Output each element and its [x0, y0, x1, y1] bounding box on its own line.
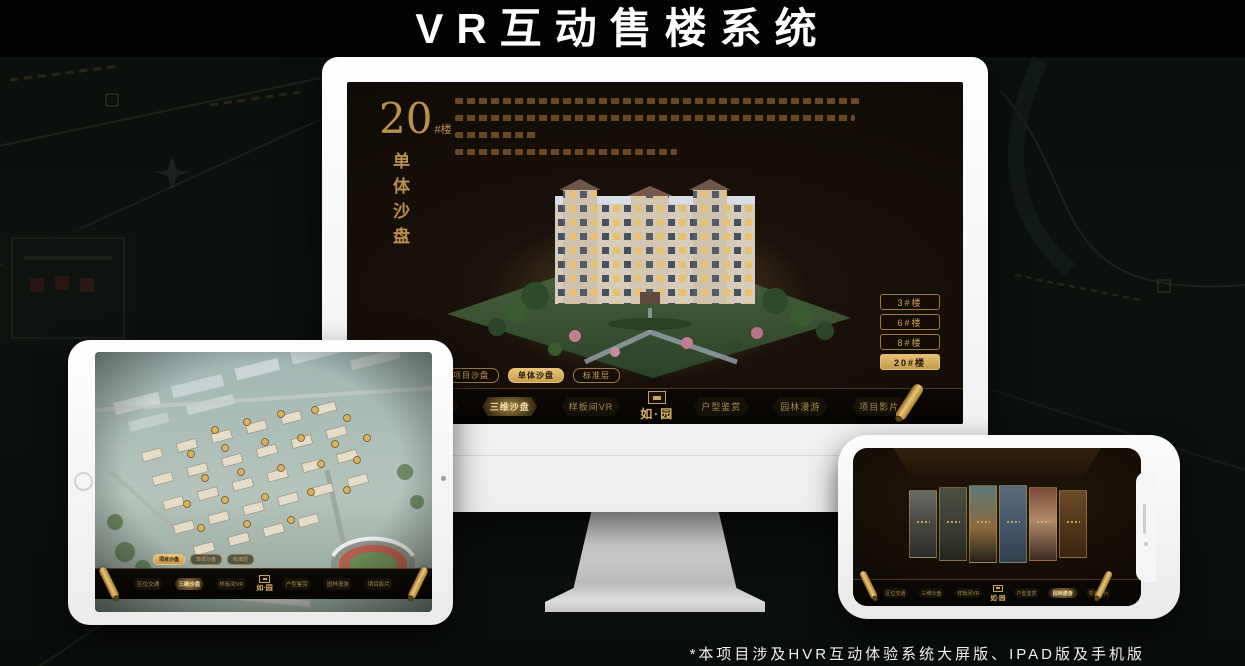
background-plaque	[2, 228, 134, 348]
nav-item-garden-roam[interactable]: 园林漫游	[321, 578, 355, 590]
intro-text-line	[455, 98, 863, 104]
phone-screen: 区位交通 三维沙盘 样板间VR 如·园 户型鉴赏 园林漫游 项目影片	[853, 448, 1141, 606]
nav-item-model-room-vr[interactable]: 样板间VR	[952, 588, 984, 598]
tablet-subtab-project-sandbox[interactable]: 项目沙盘	[153, 554, 185, 565]
nav-item-model-room-vr[interactable]: 样板间VR	[557, 397, 626, 416]
brand-logo-text: 如·园	[640, 405, 674, 422]
nav-item-location-traffic[interactable]: 区位交通	[880, 588, 910, 598]
seal-stamp-icon	[993, 585, 1003, 592]
gallery-panel-6[interactable]	[1059, 490, 1087, 558]
tablet-screen: 项目沙盘 单体沙盘 标准层 区位交通 三维沙盘 样板间VR 如·园 户型鉴赏 园…	[95, 352, 432, 612]
subtab-standard-floor[interactable]: 标准层	[573, 368, 620, 383]
tablet-subtab-single-building[interactable]: 单体沙盘	[190, 554, 222, 565]
brand-logo: 如·园	[640, 391, 674, 422]
floor-button-6[interactable]: 6#楼	[880, 314, 940, 330]
phone-device: 区位交通 三维沙盘 样板间VR 如·园 户型鉴赏 园林漫游 项目影片	[838, 435, 1180, 619]
seal-stamp-icon	[259, 575, 270, 583]
footnote-caption: *本项目涉及HVR互动体验系统大屏版、IPAD版及手机版	[690, 643, 1145, 664]
nav-item-garden-roam[interactable]: 园林漫游	[768, 397, 832, 416]
intro-text-line	[455, 132, 539, 138]
brand-logo-text: 如·园	[990, 592, 1005, 602]
building-number: 20	[379, 94, 432, 143]
phone-notch	[1136, 472, 1156, 582]
tablet-camera-icon	[441, 476, 446, 481]
nav-item-floorplan-gallery[interactable]: 户型鉴赏	[1012, 588, 1042, 598]
floor-selector: 3#楼 6#楼 8#楼 20#楼	[880, 294, 940, 370]
floor-button-8[interactable]: 8#楼	[880, 334, 940, 350]
nav-item-3d-sandbox[interactable]: 三维沙盘	[478, 397, 542, 416]
page-canvas: VR互动售楼系统 20#楼 单体沙盘	[0, 0, 1245, 666]
seal-stamp-icon	[648, 391, 666, 404]
tablet-subtabs: 项目沙盘 单体沙盘 标准层	[153, 554, 254, 565]
phone-speaker-icon	[1143, 504, 1146, 534]
background-compass	[155, 156, 190, 190]
tablet-home-button	[74, 472, 93, 491]
tablet-main-nav: 区位交通 三维沙盘 样板间VR 如·园 户型鉴赏 园林漫游 项目影片	[95, 568, 432, 599]
nav-item-3d-sandbox[interactable]: 三维沙盘	[172, 578, 206, 590]
nav-item-project-film[interactable]: 项目影片	[362, 578, 396, 590]
intro-text-line	[455, 115, 855, 121]
tablet-subtab-standard-floor[interactable]: 标准层	[227, 554, 254, 565]
page-title: VR互动售楼系统	[415, 8, 829, 50]
building-headline: 20#楼	[379, 98, 452, 140]
floor-button-3[interactable]: 3#楼	[880, 294, 940, 310]
subtab-single-building[interactable]: 单体沙盘	[508, 368, 564, 383]
gallery-panel-2[interactable]	[939, 487, 967, 561]
brand-logo-text: 如·园	[256, 583, 272, 593]
brand-logo: 如·园	[256, 575, 272, 593]
building-3d-render	[435, 146, 863, 380]
gallery-panel-5[interactable]	[1029, 487, 1057, 561]
brand-logo: 如·园	[990, 585, 1005, 602]
section-title-vertical: 单体沙盘	[387, 152, 412, 252]
nav-item-floorplan-gallery[interactable]: 户型鉴赏	[689, 397, 753, 416]
nav-item-location-traffic[interactable]: 区位交通	[131, 578, 165, 590]
tablet-device: 项目沙盘 单体沙盘 标准层 区位交通 三维沙盘 样板间VR 如·园 户型鉴赏 园…	[68, 340, 453, 625]
phone-camera-icon	[1144, 542, 1148, 546]
gallery-panel-4[interactable]	[999, 485, 1027, 563]
gallery-panel-3[interactable]	[969, 485, 997, 563]
gallery-panel-1[interactable]	[909, 490, 937, 558]
nav-item-floorplan-gallery[interactable]: 户型鉴赏	[280, 578, 314, 590]
tablet-nav-area: 项目沙盘 单体沙盘 标准层 区位交通 三维沙盘 样板间VR 如·园 户型鉴赏 园…	[95, 554, 432, 600]
sandbox-subtabs: 项目沙盘 单体沙盘 标准层	[443, 368, 620, 383]
building-number-suffix: #楼	[434, 124, 451, 136]
floor-button-20[interactable]: 20#楼	[880, 354, 940, 370]
nav-item-model-room-vr[interactable]: 样板间VR	[213, 578, 249, 590]
nav-item-3d-sandbox[interactable]: 三维沙盘	[916, 588, 946, 598]
nav-item-garden-roam[interactable]: 园林漫游	[1048, 588, 1078, 598]
title-banner: VR互动售楼系统	[0, 0, 1245, 57]
